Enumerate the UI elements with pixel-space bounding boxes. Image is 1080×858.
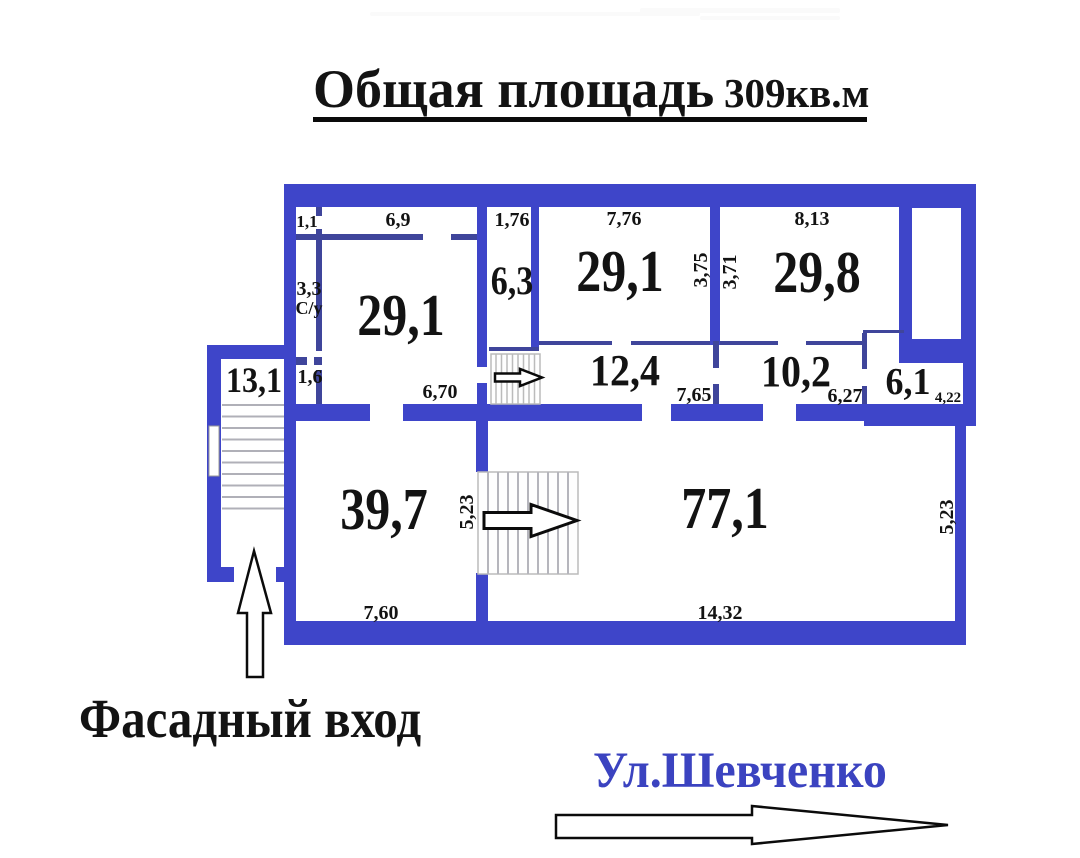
svg-text:Общая площадь: Общая площадь bbox=[313, 59, 714, 119]
svg-text:1,76: 1,76 bbox=[495, 209, 530, 231]
svg-text:Фасадный вход: Фасадный вход bbox=[79, 690, 421, 750]
svg-text:1,6: 1,6 bbox=[298, 366, 323, 388]
svg-text:29,1: 29,1 bbox=[576, 238, 663, 304]
svg-text:5,23: 5,23 bbox=[456, 495, 478, 530]
svg-text:6,27: 6,27 bbox=[828, 385, 863, 407]
svg-text:6,9: 6,9 bbox=[386, 209, 411, 231]
svg-text:6,1: 6,1 bbox=[885, 360, 930, 402]
svg-text:3,71: 3,71 bbox=[719, 255, 741, 290]
svg-text:39,7: 39,7 bbox=[340, 476, 427, 542]
svg-text:1,1: 1,1 bbox=[296, 212, 317, 231]
svg-text:7,60: 7,60 bbox=[364, 602, 399, 624]
svg-text:7,65: 7,65 bbox=[677, 384, 712, 406]
svg-text:6,3: 6,3 bbox=[491, 259, 533, 303]
svg-text:3,3: 3,3 bbox=[297, 278, 322, 300]
svg-text:14,32: 14,32 bbox=[698, 602, 743, 624]
svg-text:10,2: 10,2 bbox=[761, 348, 831, 396]
svg-text:7,76: 7,76 bbox=[607, 208, 642, 230]
svg-text:С/у: С/у bbox=[296, 298, 323, 318]
svg-text:13,1: 13,1 bbox=[226, 361, 282, 400]
svg-text:5,23: 5,23 bbox=[936, 500, 958, 535]
svg-text:309кв.м: 309кв.м bbox=[724, 70, 869, 116]
svg-text:Ул.Шевченко: Ул.Шевченко bbox=[593, 742, 887, 799]
svg-text:12,4: 12,4 bbox=[590, 347, 660, 395]
svg-text:29,8: 29,8 bbox=[773, 239, 860, 305]
svg-text:6,70: 6,70 bbox=[423, 381, 458, 403]
svg-text:29,1: 29,1 bbox=[357, 282, 444, 348]
svg-text:4,22: 4,22 bbox=[935, 390, 961, 406]
svg-text:77,1: 77,1 bbox=[681, 475, 768, 541]
svg-text:3,75: 3,75 bbox=[690, 253, 712, 288]
svg-text:8,13: 8,13 bbox=[795, 208, 830, 230]
